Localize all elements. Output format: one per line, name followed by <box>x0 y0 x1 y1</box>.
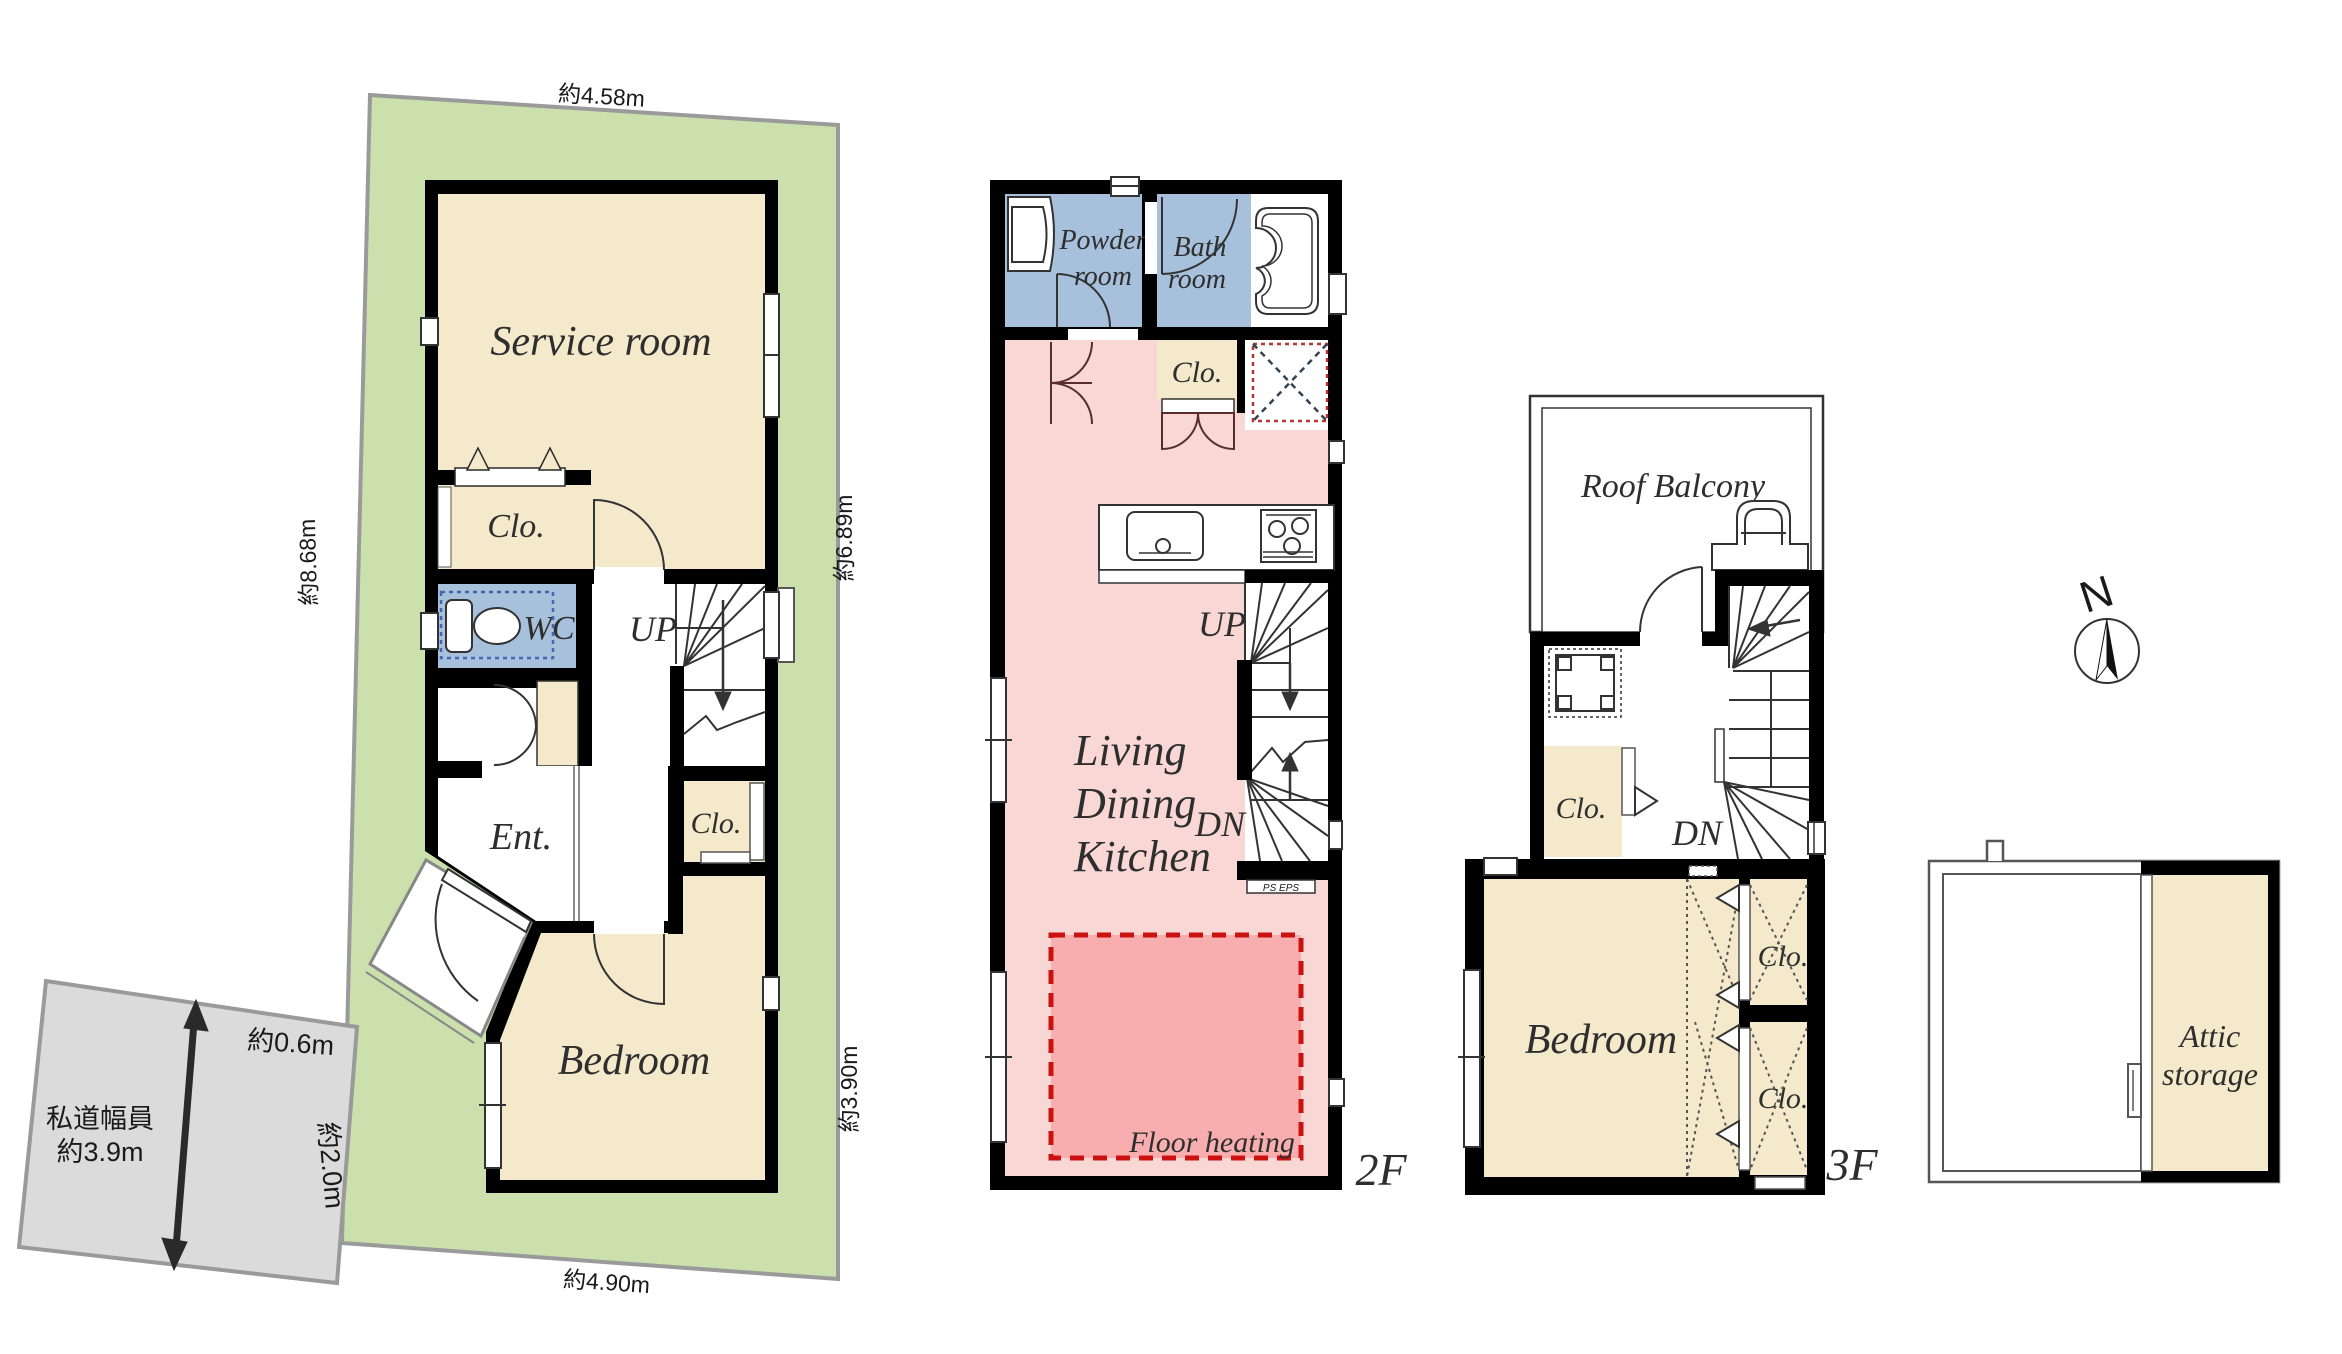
svg-text:Service room: Service room <box>490 319 711 365</box>
svg-text:Clo.: Clo. <box>691 807 742 840</box>
svg-text:約3.9m: 約3.9m <box>56 1137 143 1167</box>
svg-text:Living: Living <box>1073 726 1186 775</box>
svg-text:room: room <box>1168 264 1226 295</box>
svg-text:Roof Balcony: Roof Balcony <box>1580 468 1766 505</box>
svg-text:3F: 3F <box>1825 1139 1878 1190</box>
svg-text:約3.90m: 約3.90m <box>836 1046 862 1133</box>
svg-text:Floor heating: Floor heating <box>1128 1126 1295 1159</box>
svg-text:Ent.: Ent. <box>489 816 552 858</box>
svg-text:WC: WC <box>524 610 575 647</box>
svg-text:UP: UP <box>629 609 677 649</box>
svg-text:Clo.: Clo. <box>1556 792 1607 825</box>
svg-text:約6.89m: 約6.89m <box>831 495 857 582</box>
svg-text:Clo.: Clo. <box>1172 356 1223 389</box>
svg-text:約4.58m: 約4.58m <box>557 80 645 111</box>
svg-text:Bedroom: Bedroom <box>1525 1017 1677 1063</box>
svg-text:Kitchen: Kitchen <box>1073 832 1211 881</box>
svg-text:Powder: Powder <box>1058 225 1146 256</box>
svg-text:Dining: Dining <box>1073 779 1196 828</box>
svg-text:Bedroom: Bedroom <box>558 1038 710 1084</box>
svg-text:DN: DN <box>1671 813 1724 853</box>
svg-text:私道幅員: 私道幅員 <box>46 1104 154 1134</box>
svg-text:room: room <box>1074 261 1132 292</box>
svg-text:約8.68m: 約8.68m <box>294 518 322 606</box>
svg-text:storage: storage <box>2162 1056 2258 1092</box>
svg-text:PS EPS: PS EPS <box>1263 883 1299 894</box>
svg-text:約0.6m: 約0.6m <box>246 1025 335 1061</box>
svg-text:2F: 2F <box>1355 1144 1407 1195</box>
svg-text:Clo.: Clo. <box>487 508 545 545</box>
svg-text:UP: UP <box>1198 604 1246 644</box>
svg-text:Attic: Attic <box>2178 1018 2240 1054</box>
